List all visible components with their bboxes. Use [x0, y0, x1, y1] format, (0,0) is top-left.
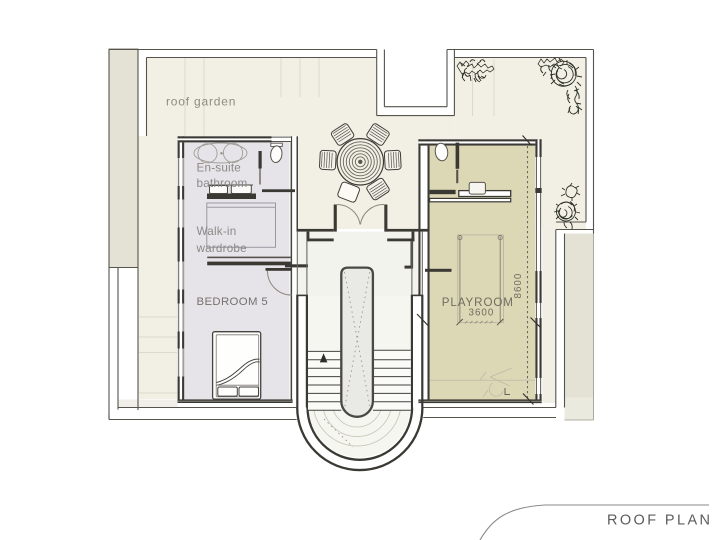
- svg-text:8600: 8600: [513, 273, 524, 299]
- svg-text:En-suite: En-suite: [197, 161, 241, 174]
- svg-text:Walk-in: Walk-in: [197, 225, 237, 238]
- svg-text:BEDROOM 5: BEDROOM 5: [197, 296, 269, 308]
- svg-text:bathroom: bathroom: [197, 177, 248, 190]
- svg-text:wardrobe: wardrobe: [196, 242, 247, 255]
- svg-text:3600: 3600: [469, 308, 495, 319]
- svg-text:ROOF PLAN: ROOF PLAN: [607, 513, 712, 529]
- svg-text:roof garden: roof garden: [166, 95, 236, 109]
